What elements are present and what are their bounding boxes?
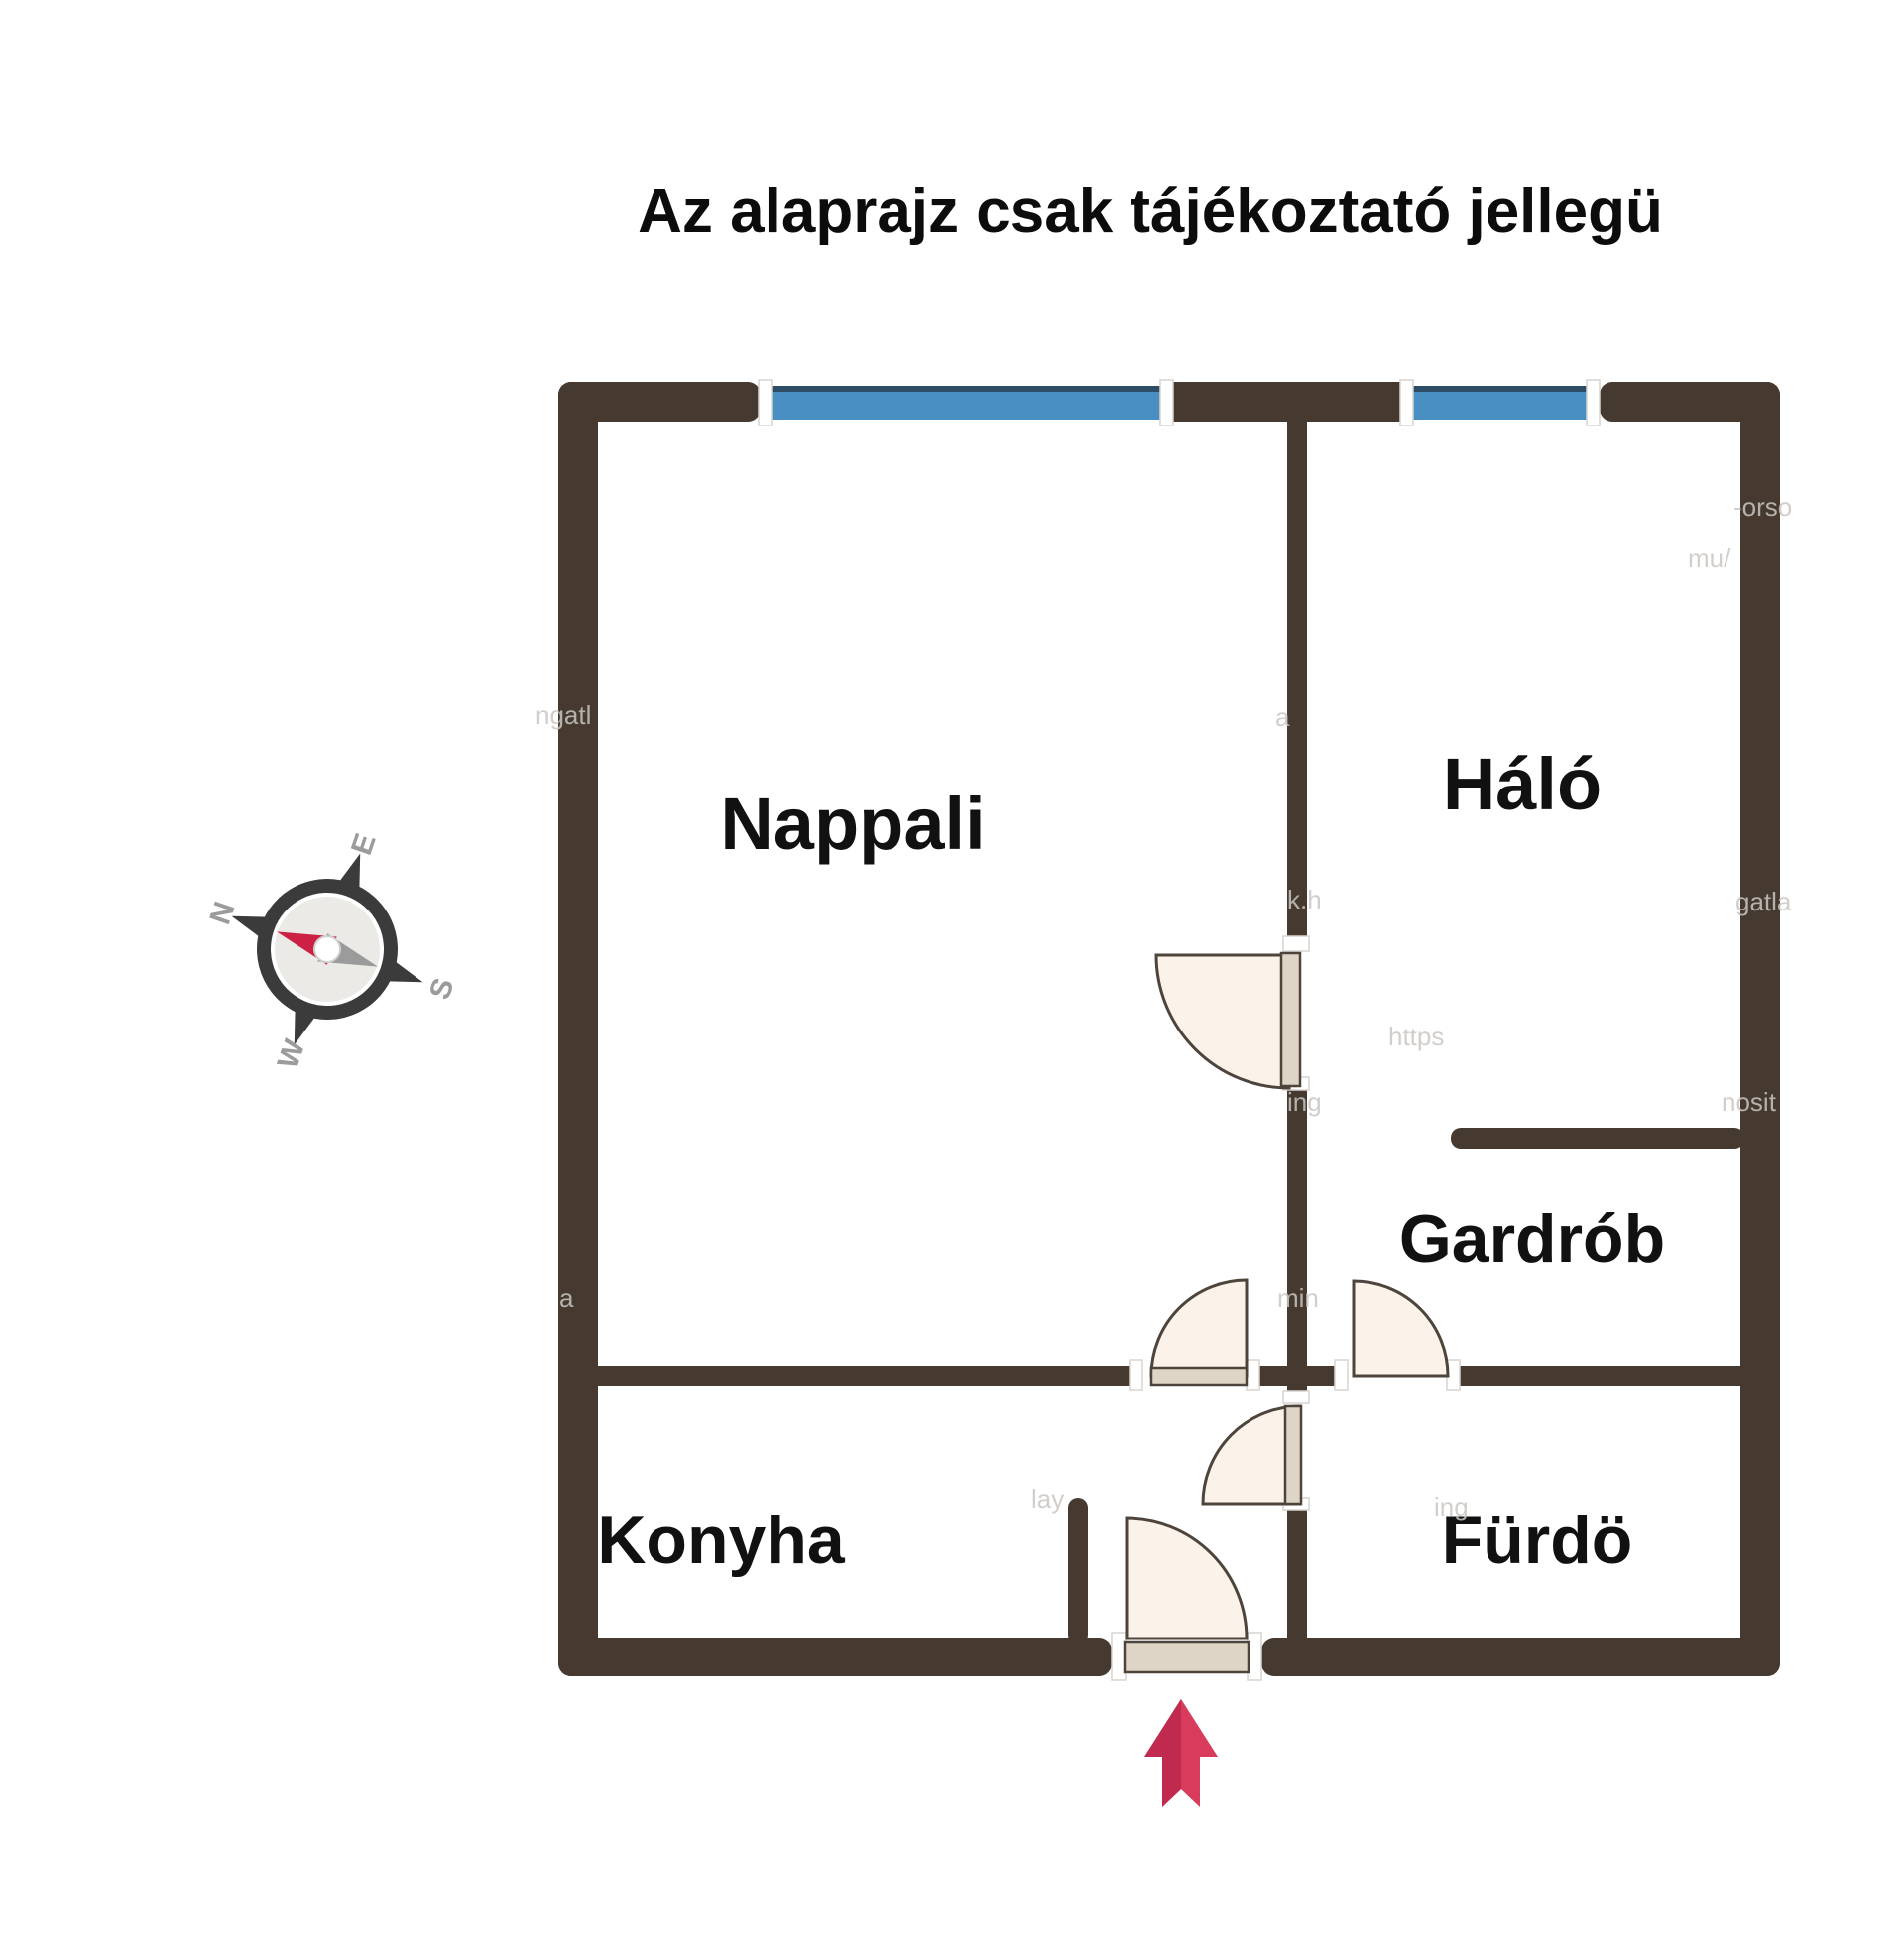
wall-bottom-segment-b xyxy=(1261,1638,1780,1676)
cap-door3-left xyxy=(1335,1360,1348,1390)
door-nappali-halo-swing xyxy=(1156,955,1289,1088)
wall-top-segment-b xyxy=(1173,382,1400,422)
cap-door1-top xyxy=(1283,936,1309,951)
cap-window2-right xyxy=(1587,380,1600,425)
watermark-text: https xyxy=(1388,1022,1444,1051)
wall-top-segment-c xyxy=(1600,382,1780,422)
wall-divider-vertical-upper xyxy=(1287,420,1307,940)
compass-label-south: S xyxy=(423,974,461,1004)
door-hall-nappali-leaf xyxy=(1151,1368,1247,1385)
watermark-text: gatla xyxy=(1735,887,1792,916)
wall-konyha-nappali-a xyxy=(596,1366,1137,1386)
watermark-text: min xyxy=(1277,1283,1319,1313)
watermark-text: ngatl xyxy=(535,700,591,730)
watermark-text: ing xyxy=(1287,1087,1322,1117)
floorplan-page: Az alaprajz csak tájékoztató jellegü xyxy=(0,0,1904,1941)
wall-divider-vertical-middle xyxy=(1287,1086,1307,1400)
walls xyxy=(558,382,1780,1676)
watermark-text: nosit xyxy=(1722,1087,1777,1117)
cap-door2-right xyxy=(1247,1360,1259,1390)
door-nappali-halo-leaf xyxy=(1281,953,1300,1086)
room-label-konyha: Konyha xyxy=(597,1503,846,1578)
wall-konyha-nappali-b xyxy=(1252,1366,1341,1386)
entrance-arrow-shade xyxy=(1144,1699,1181,1807)
wall-halo-gardrob xyxy=(1451,1128,1744,1149)
entrance-arrow-icon xyxy=(1144,1699,1218,1807)
cap-door2-left xyxy=(1130,1360,1142,1390)
cap-door4-top xyxy=(1283,1391,1309,1403)
wall-right xyxy=(1740,382,1780,1676)
compass-label-east: E xyxy=(345,829,383,859)
window-nappali-frame-edge xyxy=(772,386,1160,392)
door-hall-gardrob-swing xyxy=(1354,1281,1448,1376)
compass-rose-icon: N E S W xyxy=(167,793,497,1113)
door-entrance-leaf xyxy=(1125,1642,1249,1672)
door-entrance-swing xyxy=(1127,1518,1247,1638)
wall-konyha-stub xyxy=(1068,1498,1088,1644)
floorplan-canvas: Az alaprajz csak tájékoztató jellegü xyxy=(0,0,1904,1941)
cap-window1-right xyxy=(1160,380,1173,425)
compass-label-west: W xyxy=(272,1035,312,1073)
wall-bottom-segment-a xyxy=(558,1638,1112,1676)
room-label-halo: Háló xyxy=(1443,743,1602,825)
watermark-text: ing xyxy=(1434,1492,1469,1521)
watermark-text: lay xyxy=(1031,1484,1064,1514)
window-halo-frame-edge xyxy=(1413,386,1587,392)
watermark-text: k.h xyxy=(1287,885,1322,914)
wall-divider-vertical-lower xyxy=(1287,1506,1307,1644)
page-title: Az alaprajz csak tájékoztató jellegü xyxy=(638,178,1663,246)
wall-left xyxy=(558,382,598,1676)
compass-label-north: N xyxy=(203,898,241,928)
room-label-nappali: Nappali xyxy=(720,783,985,865)
wall-gardrob-furdo xyxy=(1451,1366,1744,1386)
wall-top-segment-a xyxy=(558,382,761,422)
room-label-furdo: Fürdö xyxy=(1442,1503,1633,1578)
door-hall-nappali-swing xyxy=(1151,1280,1247,1376)
cap-window2-left xyxy=(1400,380,1413,425)
room-label-gardrob: Gardrób xyxy=(1399,1201,1665,1276)
watermark-text: a xyxy=(1275,702,1290,732)
room-labels: Nappali Háló Gardrób Konyha Fürdö xyxy=(597,743,1665,1578)
watermark-text: a xyxy=(559,1283,574,1313)
door-hall-furdo-leaf xyxy=(1285,1406,1301,1504)
watermark-text: mu/ xyxy=(1688,544,1731,573)
cap-window1-left xyxy=(759,380,772,425)
watermark-text: -orso xyxy=(1733,492,1792,522)
